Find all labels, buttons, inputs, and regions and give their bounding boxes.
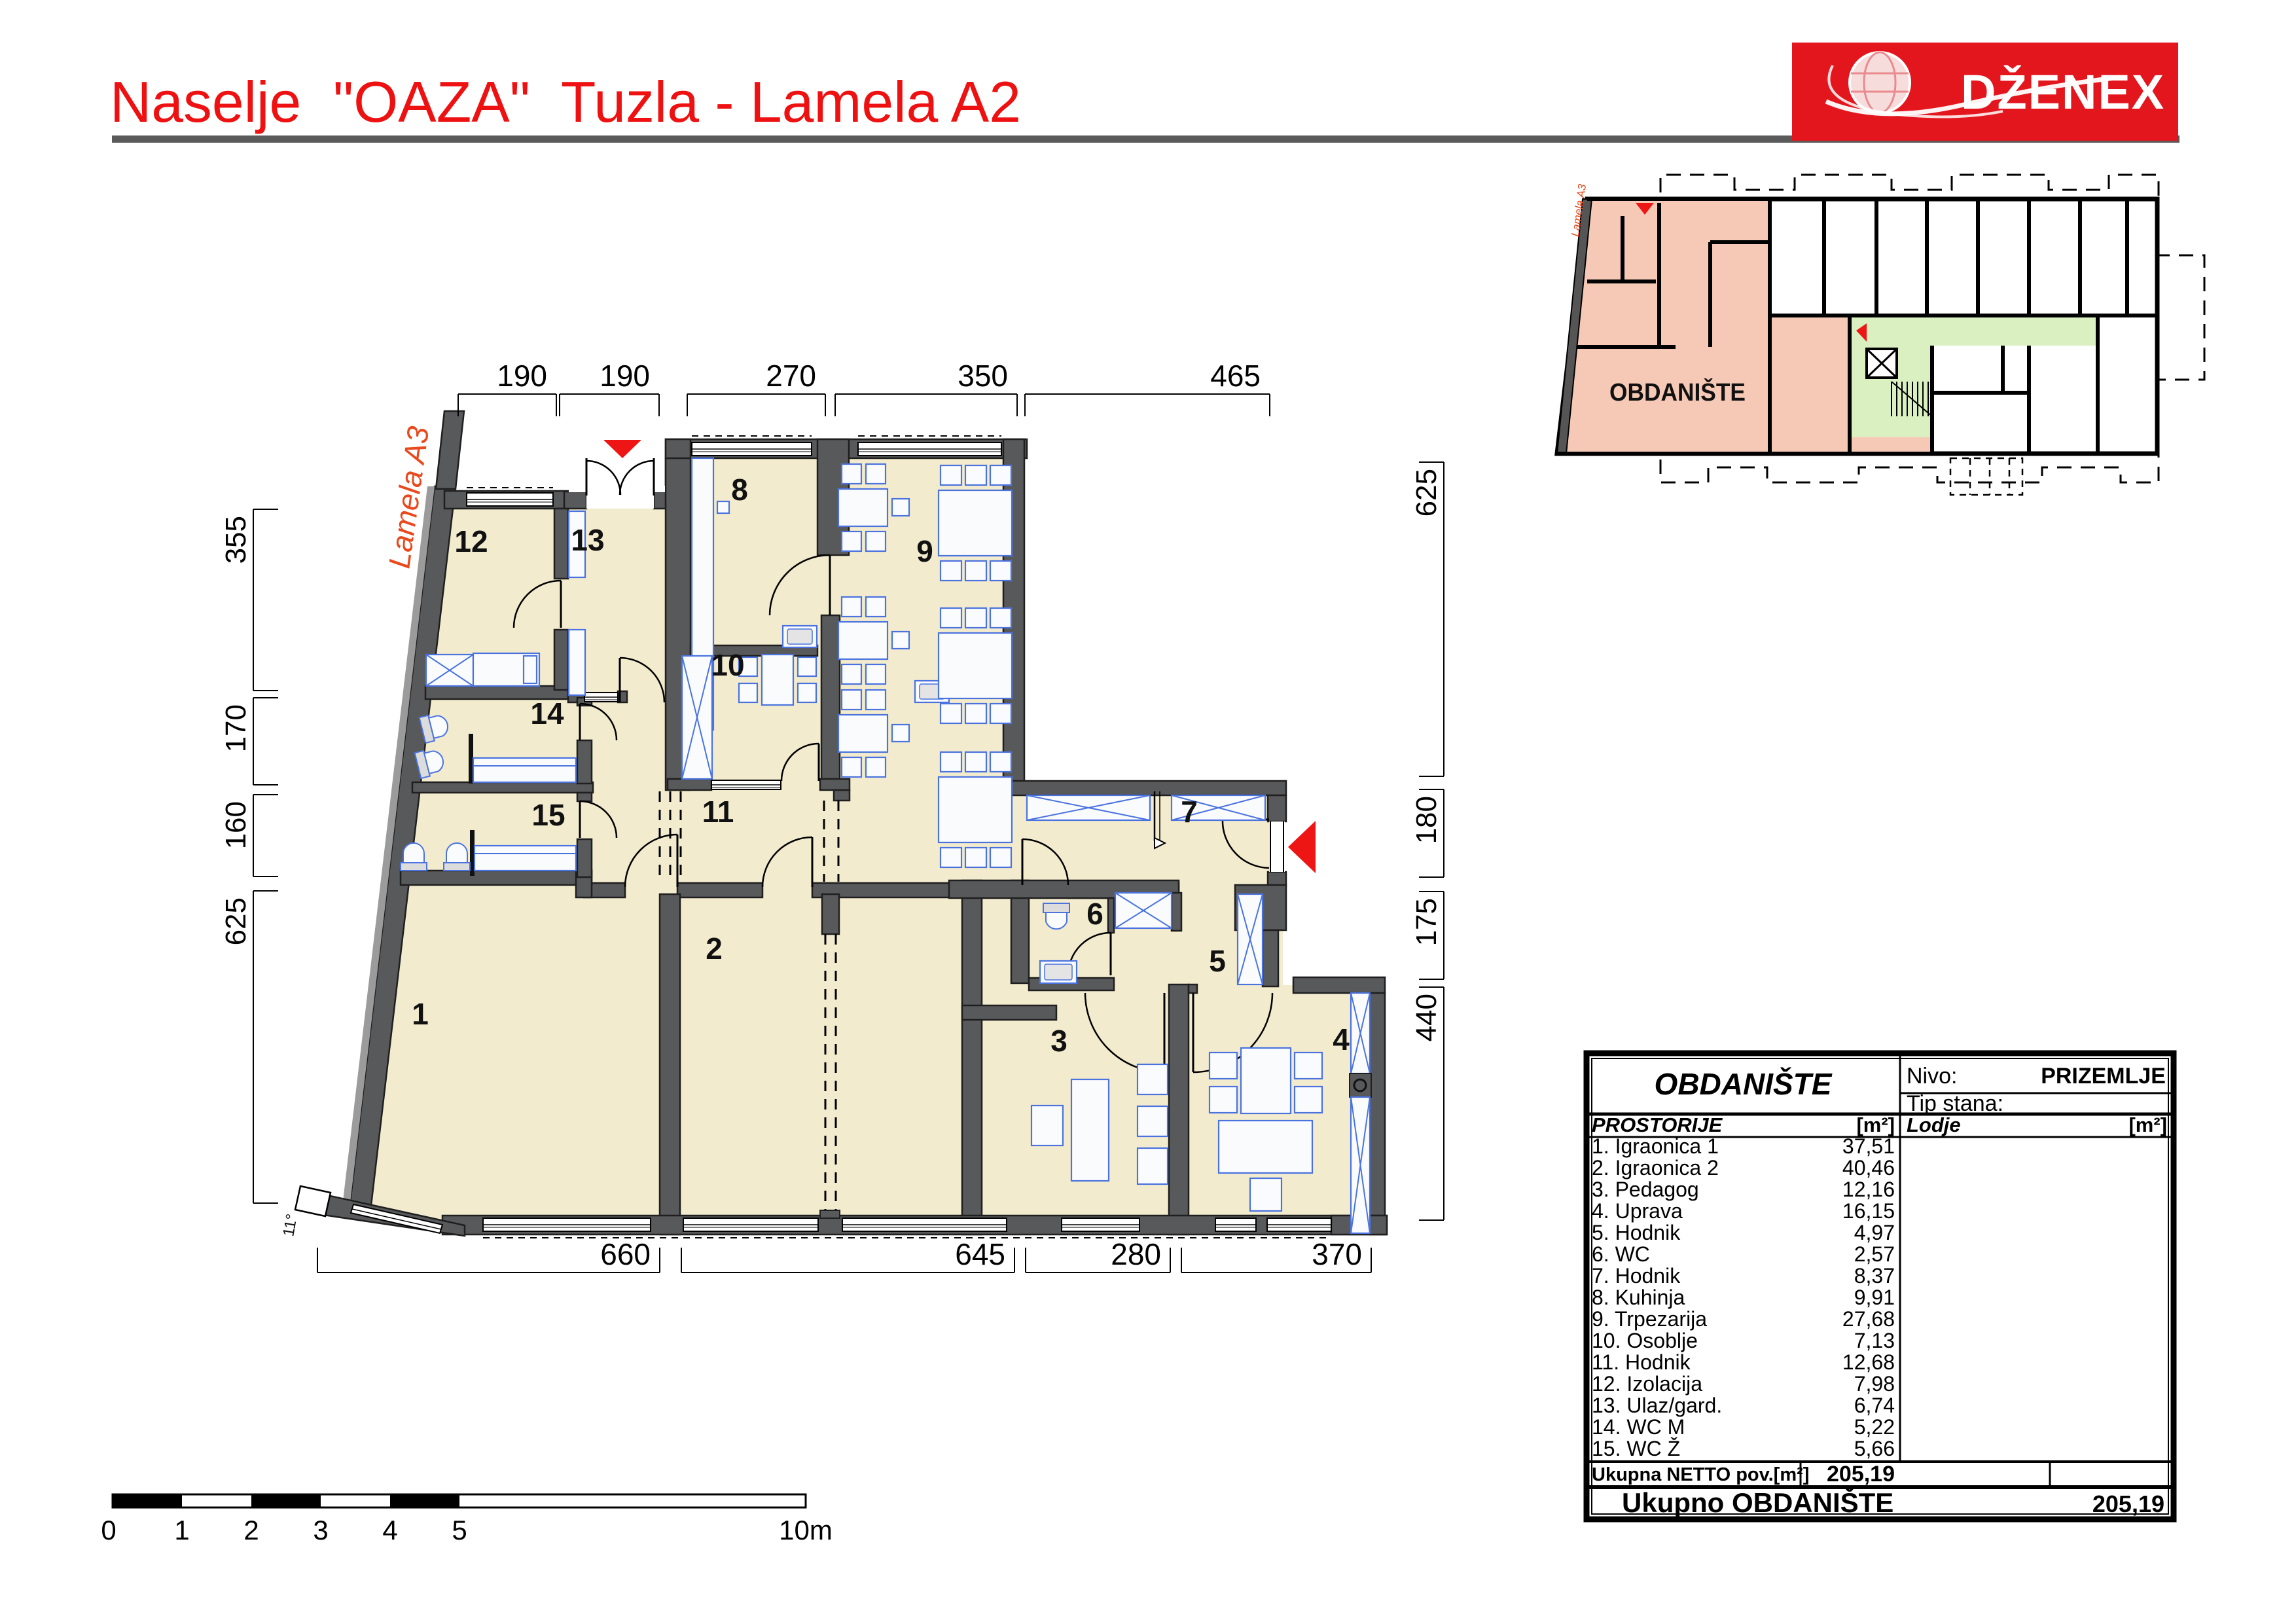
svg-text:4: 4: [382, 1515, 397, 1545]
svg-text:11: 11: [702, 795, 734, 829]
svg-text:7. Hodnik: 7. Hodnik: [1592, 1264, 1681, 1288]
svg-text:Lodje: Lodje: [1907, 1113, 1961, 1136]
svg-text:11. Hodnik: 11. Hodnik: [1592, 1350, 1691, 1374]
svg-text:14. WC M: 14. WC M: [1592, 1415, 1685, 1439]
svg-text:6: 6: [1086, 897, 1103, 931]
svg-text:3: 3: [1050, 1024, 1067, 1058]
svg-text:OBDANIŠTE: OBDANIŠTE: [1655, 1067, 1833, 1101]
svg-text:12. Izolacija: 12. Izolacija: [1592, 1372, 1702, 1396]
svg-text:205,19: 205,19: [1827, 1462, 1895, 1487]
svg-text:625: 625: [220, 897, 252, 945]
svg-text:[m²]: [m²]: [2128, 1113, 2167, 1136]
svg-text:OBDANIŠTE: OBDANIŠTE: [1609, 377, 1746, 406]
svg-text:350: 350: [958, 359, 1008, 393]
svg-text:280: 280: [1111, 1237, 1161, 1271]
svg-text:13: 13: [571, 523, 604, 557]
svg-text:Ukupno OBDANIŠTE: Ukupno OBDANIŠTE: [1622, 1487, 1893, 1518]
svg-text:8. Kuhinja: 8. Kuhinja: [1592, 1286, 1685, 1309]
svg-text:Ukupna NETTO pov.[m²]: Ukupna NETTO pov.[m²]: [1592, 1464, 1809, 1485]
svg-text:3: 3: [313, 1515, 328, 1545]
svg-text:Nivo:: Nivo:: [1907, 1064, 1957, 1089]
svg-text:9: 9: [916, 534, 933, 568]
svg-text:9,91: 9,91: [1854, 1286, 1895, 1309]
svg-text:0: 0: [101, 1515, 116, 1545]
svg-text:10m: 10m: [779, 1515, 833, 1545]
svg-text:2: 2: [706, 931, 723, 965]
svg-text:205,19: 205,19: [2092, 1490, 2164, 1517]
svg-text:1: 1: [412, 997, 429, 1031]
svg-text:370: 370: [1312, 1237, 1362, 1271]
svg-text:4,97: 4,97: [1854, 1221, 1895, 1244]
svg-text:3. Pedagog: 3. Pedagog: [1592, 1178, 1699, 1201]
svg-text:14: 14: [530, 696, 564, 731]
svg-text:DŽENEX: DŽENEX: [1961, 65, 2165, 119]
svg-text:PROSTORIJE: PROSTORIJE: [1592, 1113, 1723, 1136]
svg-text:5,66: 5,66: [1854, 1437, 1895, 1460]
svg-text:7,98: 7,98: [1854, 1372, 1895, 1396]
svg-text:12: 12: [454, 524, 488, 558]
svg-text:13. Ulaz/gard.: 13. Ulaz/gard.: [1592, 1394, 1722, 1417]
svg-text:1: 1: [174, 1515, 189, 1545]
svg-text:625: 625: [1410, 469, 1443, 516]
svg-text:5: 5: [452, 1515, 467, 1545]
svg-text:6. WC: 6. WC: [1592, 1242, 1650, 1266]
svg-text:2. Igraonica 2: 2. Igraonica 2: [1592, 1156, 1719, 1180]
svg-text:170: 170: [220, 704, 252, 752]
svg-text:5,22: 5,22: [1854, 1415, 1895, 1439]
svg-text:8,37: 8,37: [1854, 1264, 1895, 1288]
svg-text:2: 2: [243, 1515, 259, 1545]
svg-text:10. Osoblje: 10. Osoblje: [1592, 1329, 1698, 1352]
svg-text:645: 645: [955, 1237, 1005, 1271]
svg-text:40,46: 40,46: [1842, 1156, 1895, 1180]
svg-text:Naselje "OAZA" Tuzla - Lamel: Naselje "OAZA" Tuzla - Lamela A2: [110, 69, 1021, 134]
svg-text:PRIZEMLJE: PRIZEMLJE: [2041, 1064, 2166, 1089]
svg-text:7: 7: [1181, 795, 1198, 829]
svg-text:8: 8: [731, 473, 748, 507]
svg-text:440: 440: [1410, 994, 1443, 1041]
svg-text:5. Hodnik: 5. Hodnik: [1592, 1221, 1681, 1244]
svg-text:12,68: 12,68: [1842, 1350, 1895, 1374]
svg-text:27,68: 27,68: [1842, 1307, 1895, 1331]
svg-text:5: 5: [1209, 944, 1226, 978]
svg-text:37,51: 37,51: [1842, 1134, 1895, 1158]
svg-text:175: 175: [1410, 898, 1443, 946]
svg-text:Tip stana:: Tip stana:: [1907, 1091, 2003, 1116]
svg-text:270: 270: [766, 359, 816, 393]
svg-text:2,57: 2,57: [1854, 1242, 1895, 1266]
svg-text:660: 660: [600, 1237, 651, 1271]
svg-text:15: 15: [531, 798, 565, 832]
svg-text:355: 355: [220, 516, 252, 564]
svg-text:190: 190: [600, 359, 650, 393]
svg-text:180: 180: [1410, 796, 1443, 844]
svg-text:465: 465: [1210, 359, 1261, 393]
svg-text:4. Uprava: 4. Uprava: [1592, 1199, 1683, 1223]
svg-text:12,16: 12,16: [1842, 1178, 1895, 1201]
svg-text:4: 4: [1333, 1022, 1350, 1056]
svg-text:160: 160: [220, 801, 252, 849]
svg-text:15. WC Ž: 15. WC Ž: [1592, 1437, 1680, 1460]
svg-text:190: 190: [497, 359, 547, 393]
svg-text:9. Trpezarija: 9. Trpezarija: [1592, 1307, 1707, 1331]
svg-text:1. Igraonica 1: 1. Igraonica 1: [1592, 1134, 1719, 1158]
svg-text:7,13: 7,13: [1854, 1329, 1895, 1352]
svg-text:16,15: 16,15: [1842, 1199, 1895, 1223]
svg-text:6,74: 6,74: [1854, 1394, 1895, 1417]
svg-text:[m²]: [m²]: [1856, 1113, 1895, 1136]
svg-text:10: 10: [711, 648, 744, 682]
